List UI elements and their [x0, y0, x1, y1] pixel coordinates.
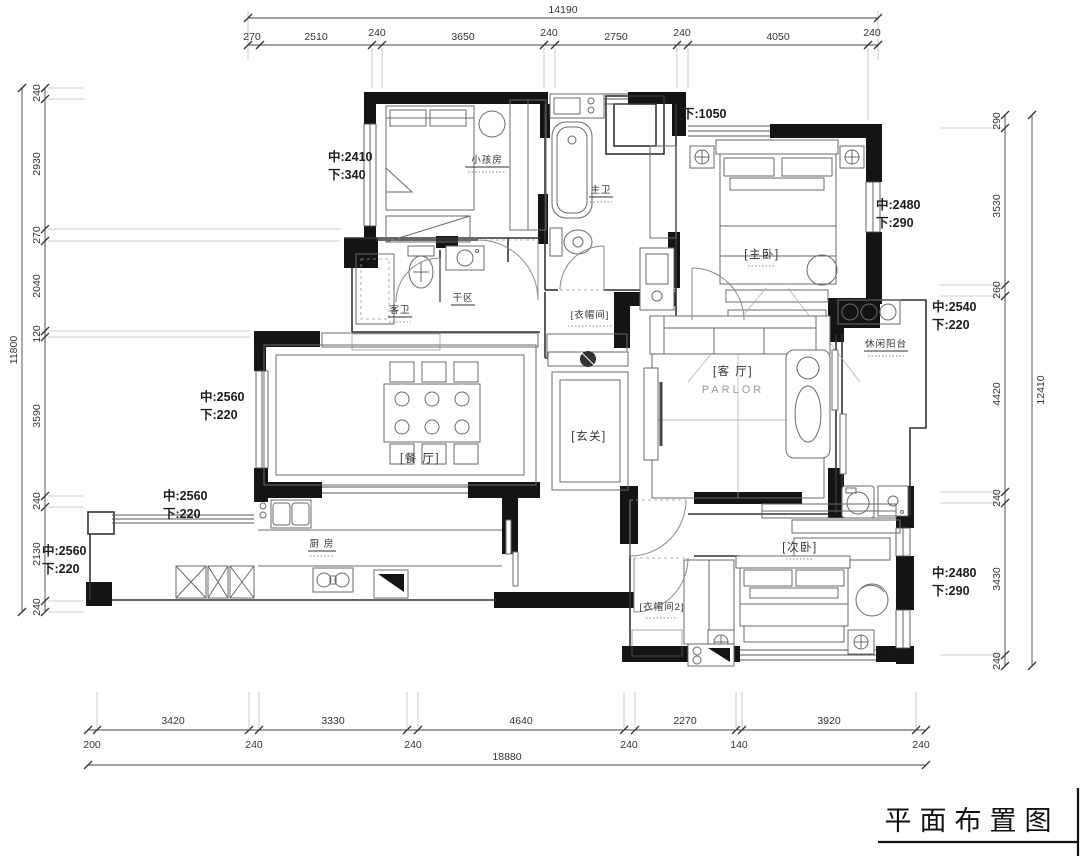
- annotation-kids-mid: 中:2410: [328, 149, 373, 164]
- annotation-kitchen-mid: 中:2560: [163, 488, 208, 503]
- dim-left-seg: 270: [31, 226, 43, 244]
- annotation-left-mid: 中:2560: [42, 543, 87, 558]
- dim-top-total: 14190: [548, 4, 577, 16]
- annotation-second-down: 下:290: [932, 584, 970, 598]
- dim-bottom-seg: 4640: [509, 715, 533, 727]
- dim-bottom-seg: 2270: [673, 715, 697, 727]
- room-label-cloakroom: [衣帽间]: [571, 309, 610, 321]
- dim-top-seg: 2750: [604, 31, 628, 43]
- dim-bottom-small: 240: [912, 739, 930, 751]
- annotation-dining-down: 下:220: [200, 408, 238, 422]
- dim-right-seg: 260: [991, 281, 1003, 299]
- annotation-second-mid: 中:2480: [932, 565, 977, 580]
- dim-bottom-seg: 3420: [161, 715, 185, 727]
- dim-top-seg: 2510: [304, 31, 328, 43]
- dim-bottom-total: 18880: [492, 751, 521, 763]
- dim-top-seg: 4050: [766, 31, 790, 43]
- dim-top-seg: 240: [863, 27, 881, 39]
- dim-left-seg: 2130: [31, 542, 43, 566]
- annotation-right-down: 下:220: [932, 318, 970, 332]
- annotation-dining-mid: 中:2560: [200, 389, 245, 404]
- dim-left-seg: 240: [31, 84, 43, 102]
- dim-left-seg: 120: [31, 325, 43, 343]
- room-label-kitchen: 厨 房: [310, 538, 335, 550]
- annotation-drop: 下:1050: [682, 107, 727, 121]
- dim-right-seg: 290: [991, 112, 1003, 130]
- title-block: 平面布置图: [878, 788, 1078, 856]
- dim-left-seg: 2930: [31, 152, 43, 176]
- dim-left-total: 11800: [8, 336, 20, 365]
- dim-left-seg: 240: [31, 492, 43, 510]
- floor-plan-drawing: 小孩房 主卫 [主卧] 客卫 干区 [衣帽间] [玄关] [餐 厅] [客 厅]…: [0, 0, 1080, 856]
- dim-right-seg: 240: [991, 489, 1003, 507]
- dim-bottom-small: 240: [404, 739, 422, 751]
- annotation-master-mid: 中:2480: [876, 197, 921, 212]
- floor-plan-page: 小孩房 主卫 [主卧] 客卫 干区 [衣帽间] [玄关] [餐 厅] [客 厅]…: [0, 0, 1080, 856]
- dim-top-seg: 240: [673, 27, 691, 39]
- extension-lines: [48, 10, 1002, 728]
- annotation-master-down: 下:290: [876, 216, 914, 230]
- room-label-guest-bath: 客卫: [389, 304, 410, 316]
- dim-top-seg: 3650: [451, 31, 475, 43]
- dim-bottom-small: 240: [245, 739, 263, 751]
- room-label-foyer: [玄关]: [571, 429, 606, 443]
- room-label-cloakroom2: [衣帽间2]: [639, 601, 684, 613]
- dim-right-seg: 240: [991, 652, 1003, 670]
- dim-bottom-seg: 3330: [321, 715, 345, 727]
- drawing-title: 平面布置图: [885, 806, 1060, 836]
- dim-bottom-seg: 3920: [817, 715, 841, 727]
- dim-bottom-small: 240: [620, 739, 638, 751]
- room-label-parlor-en: PARLOR: [702, 384, 764, 396]
- annotation-left-down: 下:220: [42, 562, 80, 576]
- dim-left-seg: 240: [31, 598, 43, 616]
- dim-bottom-small: 200: [83, 739, 101, 751]
- dim-right-seg: 3430: [991, 567, 1003, 591]
- room-label-dry-area: 干区: [452, 293, 473, 304]
- room-label-dining: [餐 厅]: [400, 451, 440, 465]
- room-label-kids: 小孩房: [471, 154, 503, 166]
- dim-left-seg: 3590: [31, 404, 43, 428]
- annotation-kitchen-down: 下:220: [163, 507, 201, 521]
- dim-top-seg: 270: [243, 31, 261, 43]
- dim-left-seg: 2040: [31, 274, 43, 298]
- dim-bottom-small: 140: [730, 739, 748, 751]
- annotation-kids-down: 下:340: [328, 168, 366, 182]
- dim-top-seg: 240: [540, 27, 558, 39]
- room-label-master: [主卧]: [744, 248, 779, 261]
- dim-right-seg: 3530: [991, 194, 1003, 218]
- dim-right-seg: 4420: [991, 382, 1003, 406]
- room-label-balcony: 休闲阳台: [865, 338, 907, 350]
- dim-top-seg: 240: [368, 27, 386, 39]
- room-label-second-bedroom: [次卧]: [782, 540, 817, 554]
- dim-right-total: 12410: [1035, 375, 1047, 404]
- room-label-master-bath: 主卫: [590, 184, 611, 196]
- room-label-parlor: [客 厅]: [713, 364, 753, 378]
- annotation-right-mid: 中:2540: [932, 299, 977, 314]
- furniture: [176, 94, 908, 666]
